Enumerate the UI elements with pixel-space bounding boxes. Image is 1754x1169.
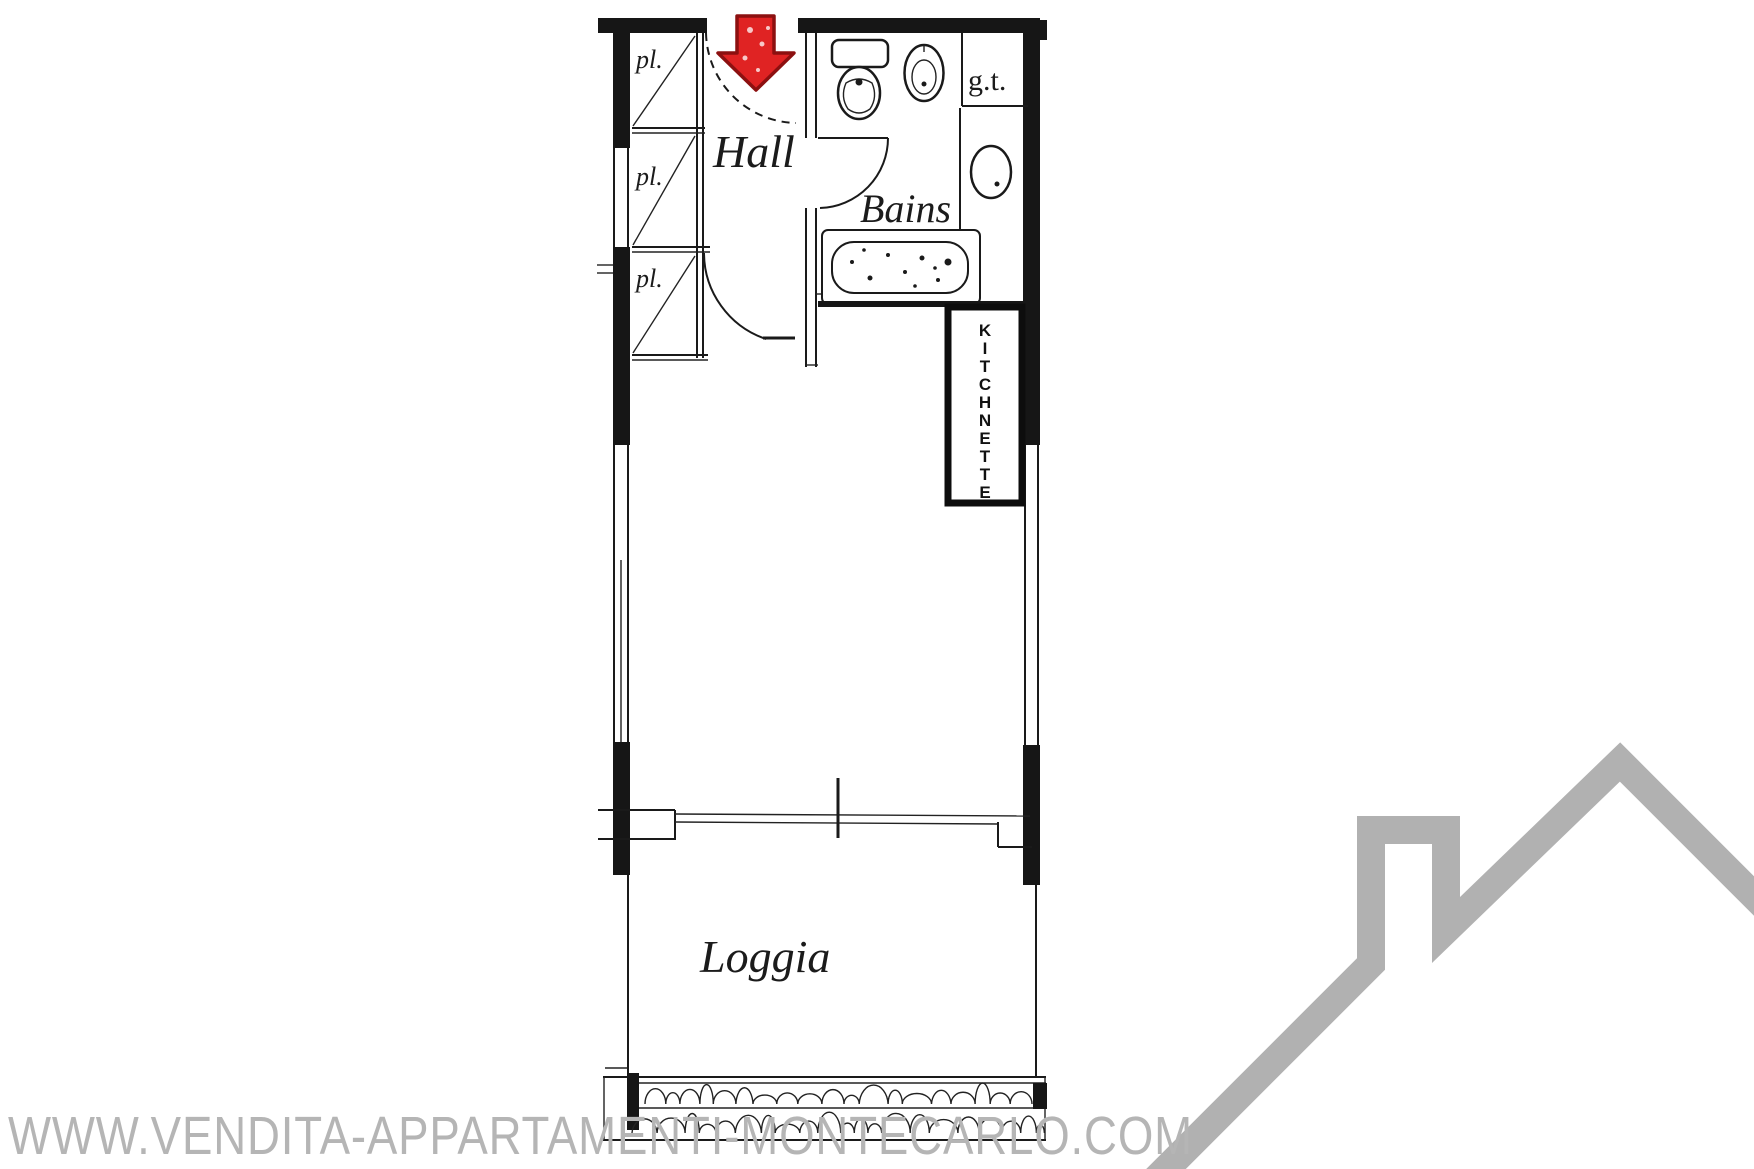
loggia-label: Loggia bbox=[699, 931, 830, 982]
technical-duct-label: g.t. bbox=[968, 64, 1006, 97]
svg-text:E: E bbox=[979, 483, 990, 502]
closet2-label: pl. bbox=[634, 162, 663, 191]
svg-text:N: N bbox=[979, 411, 991, 430]
left-window-lower bbox=[614, 445, 628, 742]
wall-break-tick bbox=[597, 265, 613, 273]
floor-plan-drawing: pl. pl. pl. bbox=[0, 0, 1754, 1169]
planter-shrubs-row1 bbox=[645, 1083, 1032, 1104]
right-wall-lower bbox=[1023, 745, 1040, 885]
entrance-arrow bbox=[718, 16, 794, 90]
closet3-label: pl. bbox=[634, 264, 663, 293]
left-wall-middle bbox=[613, 247, 630, 445]
closet1-label: pl. bbox=[634, 45, 663, 74]
left-wall-upper bbox=[613, 18, 630, 148]
top-wall-right-segment bbox=[798, 18, 1040, 33]
svg-text:T: T bbox=[980, 447, 991, 466]
watermark-url: WWW.VENDITA-APPARTAMENTI-MONTECARLO.COM bbox=[8, 1106, 1193, 1166]
left-window-upper bbox=[614, 148, 628, 247]
bathroom-partition-wall bbox=[806, 33, 822, 367]
bathroom-label: Bains bbox=[860, 186, 951, 231]
top-right-corner-cap bbox=[1039, 20, 1047, 40]
hall-label: Hall bbox=[712, 126, 795, 177]
toilet bbox=[832, 40, 888, 119]
bathtub bbox=[822, 230, 980, 304]
svg-text:T: T bbox=[980, 465, 991, 484]
svg-text:H: H bbox=[979, 393, 991, 412]
loggia-sliding-window bbox=[598, 778, 1032, 847]
svg-text:E: E bbox=[979, 429, 990, 448]
closets: pl. pl. pl. bbox=[632, 33, 710, 360]
svg-text:T: T bbox=[980, 357, 991, 376]
agency-house-logo bbox=[1150, 762, 1754, 1169]
floor-plan-page: pl. pl. pl. bbox=[0, 0, 1754, 1169]
right-wall-upper bbox=[1023, 18, 1040, 445]
living-room-door-arc bbox=[704, 253, 766, 339]
bathtub-speckles bbox=[850, 248, 952, 288]
entrance-arrow-icon bbox=[718, 16, 794, 90]
svg-text:K: K bbox=[979, 321, 992, 340]
kitchenette: K I T C H N E T T E bbox=[948, 307, 1022, 503]
technical-duct-compartment: g.t. bbox=[962, 33, 1028, 106]
right-window bbox=[1025, 445, 1038, 745]
bathroom-fixtures: g.t. bbox=[818, 33, 1040, 307]
washbasin bbox=[971, 146, 1011, 198]
left-wall-lower bbox=[613, 742, 630, 875]
bidet bbox=[905, 45, 944, 101]
svg-text:I: I bbox=[983, 339, 988, 358]
svg-text:C: C bbox=[979, 375, 991, 394]
